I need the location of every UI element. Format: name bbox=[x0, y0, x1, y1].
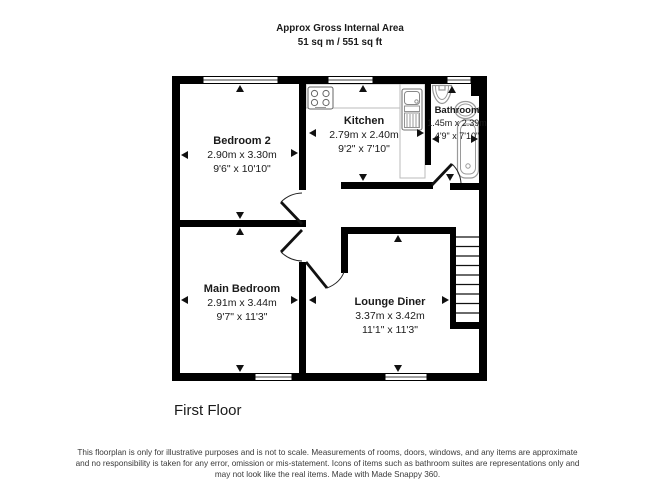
wall-bedroom-divider bbox=[180, 220, 306, 227]
window-lounge bbox=[385, 374, 427, 381]
window-bathroom bbox=[447, 77, 471, 84]
floorplan-page: Approx Gross Internal Area 51 sq m / 551… bbox=[0, 0, 670, 492]
room-dim-metric: 3.37m x 3.42m bbox=[355, 310, 424, 322]
window-mainbedroom bbox=[255, 374, 292, 381]
room-dim-metric: 2.79m x 2.40m bbox=[329, 129, 398, 141]
room-dim-imperial: 11'1" x 11'3" bbox=[362, 324, 418, 336]
room-name: Kitchen bbox=[344, 115, 384, 127]
floorplan-drawing bbox=[0, 0, 670, 492]
wall-mainbedroom-right bbox=[299, 262, 306, 373]
door-mainbedroom bbox=[281, 230, 302, 261]
room-label-lounge: Lounge Diner 3.37m x 3.42m 11'1" x 11'3" bbox=[355, 295, 426, 337]
room-name: Main Bedroom bbox=[204, 283, 280, 295]
room-label-bathroom: Bathroom 1.45m x 2.39m 4'9" x 7'10" bbox=[427, 104, 487, 143]
disclaimer-line: may not look like the real items. Made w… bbox=[0, 470, 655, 481]
hob-icon bbox=[308, 87, 333, 109]
door-bedroom2 bbox=[281, 193, 302, 224]
disclaimer-line: and no responsibility is taken for any e… bbox=[0, 459, 655, 470]
room-dim-metric: 2.90m x 3.30m bbox=[207, 149, 276, 161]
room-name: Bedroom 2 bbox=[213, 135, 270, 147]
corner-block bbox=[471, 84, 487, 96]
room-name: Lounge Diner bbox=[355, 296, 426, 308]
disclaimer: This floorplan is only for illustrative … bbox=[0, 448, 655, 480]
wall-kitchen-bottom bbox=[341, 182, 433, 189]
floor-label: First Floor bbox=[174, 402, 242, 419]
page-title: Approx Gross Internal Area 51 sq m / 551… bbox=[276, 22, 404, 50]
room-dim-metric: 1.45m x 2.39m bbox=[427, 118, 487, 128]
gross-area-value: 51 sq m / 551 sq ft bbox=[276, 36, 404, 50]
room-dim-imperial: 9'2" x 7'10" bbox=[338, 143, 390, 155]
wall-lounge-left-upper bbox=[341, 227, 348, 273]
room-dim-metric: 2.91m x 3.44m bbox=[207, 297, 276, 309]
door-lounge bbox=[306, 262, 344, 288]
room-label-bedroom2: Bedroom 2 2.90m x 3.30m 9'6" x 10'10" bbox=[207, 134, 276, 176]
window-kitchen bbox=[328, 77, 373, 84]
wall-bedroom2-right bbox=[299, 84, 306, 190]
room-dim-imperial: 9'6" x 10'10" bbox=[213, 163, 271, 175]
room-label-kitchen: Kitchen 2.79m x 2.40m 9'2" x 7'10" bbox=[329, 114, 398, 156]
stairs bbox=[450, 227, 479, 329]
wall-lounge-top bbox=[341, 227, 456, 234]
kitchen-sink-icon bbox=[402, 89, 422, 130]
pedestal-sink-icon bbox=[433, 86, 452, 104]
room-dim-imperial: 9'7" x 11'3" bbox=[217, 311, 268, 323]
window-bedroom2 bbox=[203, 77, 278, 84]
room-label-mainbedroom: Main Bedroom 2.91m x 3.44m 9'7" x 11'3" bbox=[204, 282, 280, 324]
gross-area-title: Approx Gross Internal Area bbox=[276, 22, 404, 36]
room-dim-imperial: 4'9" x 7'10" bbox=[435, 131, 479, 141]
disclaimer-line: This floorplan is only for illustrative … bbox=[0, 448, 655, 459]
room-name: Bathroom bbox=[435, 105, 480, 116]
wall-bathroom-bottom bbox=[450, 183, 479, 190]
